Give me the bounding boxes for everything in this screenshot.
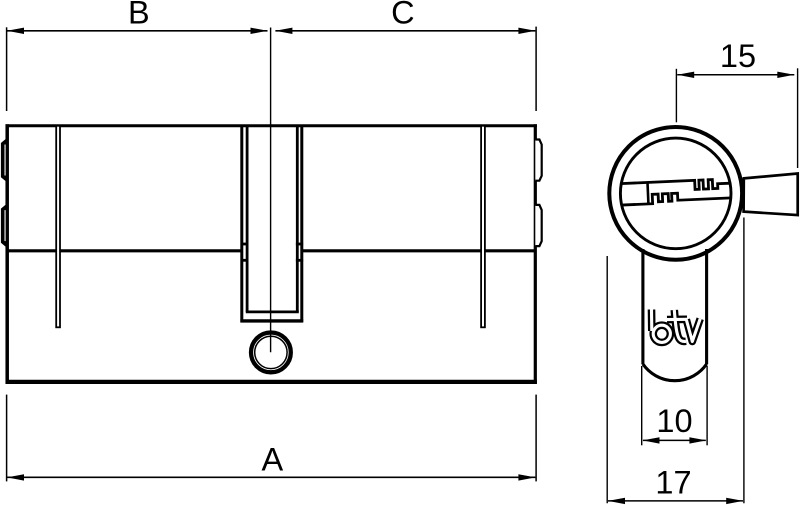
svg-text:15: 15 [720,38,756,74]
svg-text:B: B [128,0,150,31]
svg-text:17: 17 [655,464,691,500]
svg-text:10: 10 [656,403,692,439]
svg-text:C: C [391,0,414,31]
svg-text:A: A [261,441,283,477]
